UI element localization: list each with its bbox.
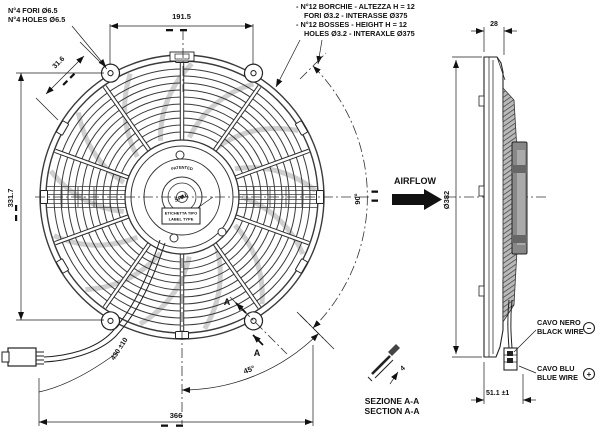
fan-side-view bbox=[446, 57, 548, 370]
side-shroud-outline bbox=[484, 57, 505, 357]
svg-text:90°: 90° bbox=[353, 193, 362, 204]
dimension-diameter-382: Ø382 bbox=[442, 57, 482, 357]
svg-text:191.5: 191.5 bbox=[172, 12, 191, 21]
dimension-28: 28 bbox=[471, 21, 517, 55]
section-marker-a1: A bbox=[224, 297, 231, 307]
section-label-line1: SEZIONE A-A bbox=[365, 396, 419, 406]
svg-text:31.6: 31.6 bbox=[52, 56, 67, 71]
svg-text:45°: 45° bbox=[242, 363, 256, 375]
svg-text:28: 28 bbox=[490, 21, 498, 28]
svg-text:366: 366 bbox=[170, 411, 183, 420]
svg-text:BLUE WIRE: BLUE WIRE bbox=[537, 373, 578, 382]
cable-connector bbox=[2, 348, 44, 366]
svg-text:CAVO NERO: CAVO NERO bbox=[537, 318, 581, 327]
svg-text:- N°12 BORCHIE - ALTEZZA H = 1: - N°12 BORCHIE - ALTEZZA H = 12 bbox=[296, 2, 415, 11]
airflow-arrow-icon bbox=[392, 189, 442, 210]
airflow-annotation: AIRFLOW bbox=[392, 176, 442, 210]
bosses-note: - N°12 BORCHIE - ALTEZZA H = 12 FORI Ø3.… bbox=[276, 2, 415, 87]
svg-text:Ø382: Ø382 bbox=[442, 191, 451, 209]
svg-text:BLACK WIRE: BLACK WIRE bbox=[537, 327, 584, 336]
side-boss-tab bbox=[479, 286, 484, 296]
fan-front-view: PATENTED SPAL ETICHETTA TIPO LABEL TYPE bbox=[2, 30, 370, 424]
hub-bolt bbox=[170, 234, 178, 242]
holes-note: N°4 FORI Ø6.5 N°4 HOLES Ø6.5 bbox=[8, 6, 106, 67]
svg-text:HOLES Ø3.2 - INTERAXLE Ø375: HOLES Ø3.2 - INTERAXLE Ø375 bbox=[304, 29, 415, 38]
black-wire-note: CAVO NERO BLACK WIRE − bbox=[514, 318, 595, 352]
svg-text:N°4 FORI Ø6.5: N°4 FORI Ø6.5 bbox=[8, 6, 58, 15]
drawing-sheet: PATENTED SPAL ETICHETTA TIPO LABEL TYPE bbox=[0, 0, 600, 432]
svg-text:N°4 HOLES Ø6.5: N°4 HOLES Ø6.5 bbox=[8, 15, 65, 24]
label-box-line1: ETICHETTA TIPO bbox=[165, 211, 197, 216]
svg-text:FORI Ø3.2 - INTERASSE Ø375: FORI Ø3.2 - INTERASSE Ø375 bbox=[304, 11, 407, 20]
blue-wire-note: CAVO BLU BLUE WIRE + bbox=[519, 364, 595, 382]
side-boss-tab bbox=[479, 186, 484, 196]
svg-text:+: + bbox=[587, 370, 592, 379]
svg-text:−: − bbox=[587, 324, 592, 333]
svg-text:4: 4 bbox=[399, 365, 407, 373]
svg-text:331.7: 331.7 bbox=[6, 189, 15, 208]
svg-text:51.1 ±1: 51.1 ±1 bbox=[486, 390, 509, 397]
hub-bolt bbox=[218, 228, 226, 236]
side-boss-tab bbox=[479, 96, 484, 106]
side-motor-band bbox=[512, 235, 527, 243]
svg-text:- N°12 BOSSES - HEIGHT H = 12: - N°12 BOSSES - HEIGHT H = 12 bbox=[296, 20, 407, 29]
svg-text:CAVO BLU: CAVO BLU bbox=[537, 364, 575, 373]
fan-drawing-svg: PATENTED SPAL ETICHETTA TIPO LABEL TYPE bbox=[0, 0, 600, 432]
section-aa-detail: 4 SEZIONE A-A SECTION A-A bbox=[365, 344, 420, 416]
wire-length-dim: 430 ±10 bbox=[110, 337, 130, 362]
side-motor-band bbox=[512, 165, 527, 173]
airflow-label: AIRFLOW bbox=[394, 176, 436, 186]
dimension-366: 366 bbox=[39, 345, 313, 427]
section-label-line2: SECTION A-A bbox=[365, 406, 420, 416]
hub-bolt bbox=[176, 151, 184, 159]
side-motor-body bbox=[517, 150, 525, 245]
label-box-line2: LABEL TYPE bbox=[169, 217, 194, 222]
section-marker-a2: A bbox=[254, 348, 261, 358]
